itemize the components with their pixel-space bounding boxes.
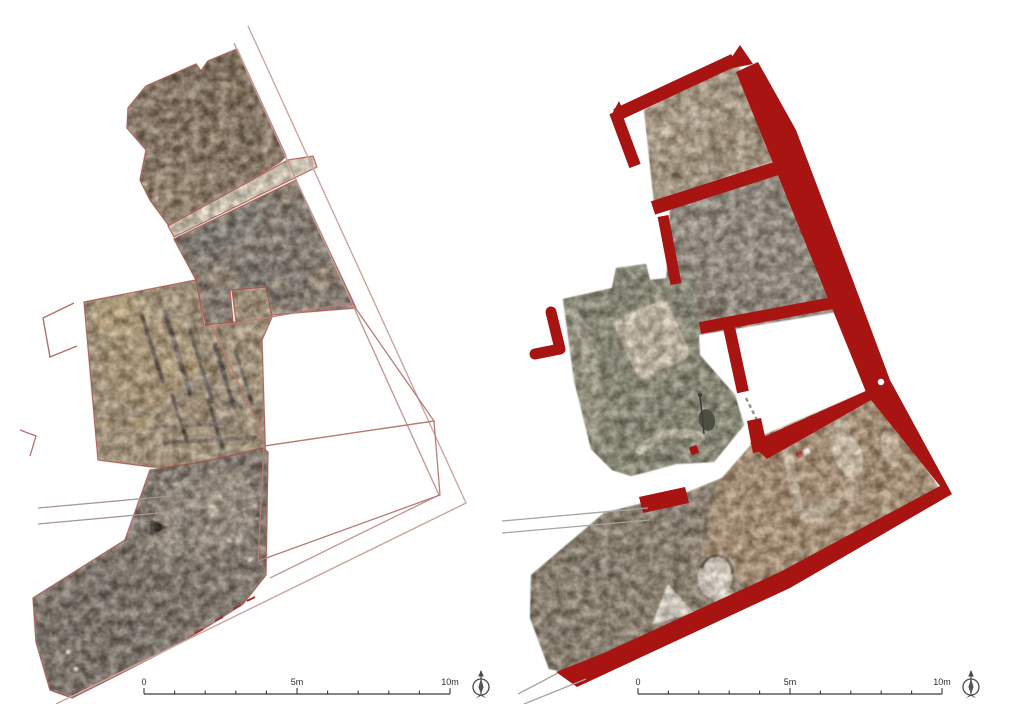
svg-text:5m: 5m	[291, 677, 304, 687]
svg-text:0: 0	[141, 677, 146, 687]
svg-text:0: 0	[635, 677, 640, 687]
svg-text:10m: 10m	[933, 677, 951, 687]
svg-text:5m: 5m	[784, 677, 797, 687]
svg-text:10m: 10m	[441, 677, 459, 687]
